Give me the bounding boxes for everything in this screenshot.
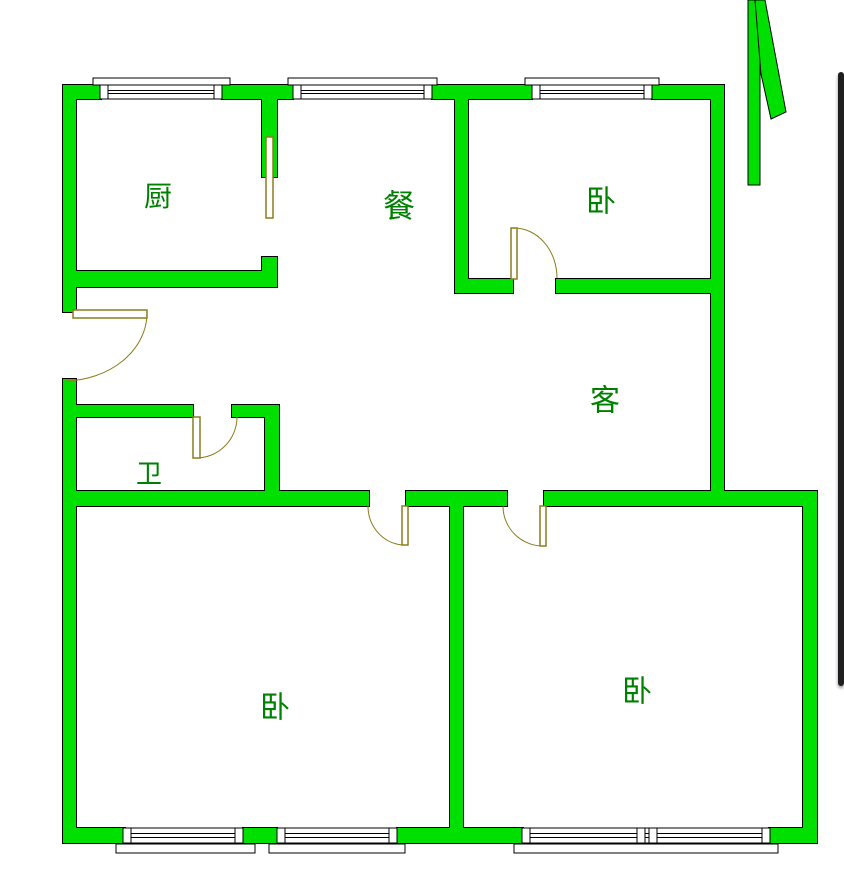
window-post-bedroomN-window-0 xyxy=(532,85,540,99)
window-post-dining-window-1 xyxy=(424,85,432,99)
window-dining-window xyxy=(293,85,432,99)
door-arc-entrance-door xyxy=(66,314,147,381)
window-post-bedroomN-window-1 xyxy=(644,85,652,99)
wall-fill-bottom-2 xyxy=(243,828,277,843)
scrollbar-thumb[interactable] xyxy=(838,72,844,686)
window-post-dining-window-0 xyxy=(293,85,301,99)
window-sill-bedroomSW-window-1 xyxy=(116,844,255,853)
room-label-dining: 餐 xyxy=(383,187,415,225)
room-label-kitchen: 厨 xyxy=(144,180,172,213)
window-sill-bedroomSW-window-2 xyxy=(269,844,405,853)
door-leaf-bedroomN-door xyxy=(511,228,517,279)
wall-fill-bottom-4 xyxy=(769,828,817,843)
window-post-bedroomSE-window-1 xyxy=(637,828,645,843)
window-post-bedroomSW-window-1-0 xyxy=(123,828,131,843)
door-arc-bedroomSW-door xyxy=(368,506,405,545)
window-bedroomSW-window-2 xyxy=(277,828,397,843)
wall-fill-right-lower xyxy=(803,491,817,843)
wall-fill-corridor-3 xyxy=(544,491,817,506)
window-bedroomN-window xyxy=(532,85,652,99)
wall-fill-left-lower xyxy=(63,379,76,843)
floorplan-svg: 厨餐卧客卫卧卧 xyxy=(0,0,844,878)
window-post-bedroomSW-window-2-1 xyxy=(389,828,397,843)
wall-fill-left-upper xyxy=(63,85,76,312)
wall-fill-kitchen-south xyxy=(75,271,277,287)
window-post-bedroomSW-window-2-0 xyxy=(277,828,285,843)
window-post-bedroomSE-window-2 xyxy=(649,828,657,843)
floorplan-canvas: 厨餐卧客卫卧卧 xyxy=(0,0,844,878)
door-arc-bedroomSE-door xyxy=(503,506,543,546)
window-sill-dining-window xyxy=(288,78,437,85)
window-bedroomSE-window xyxy=(522,828,770,843)
window-bedroomSW-window-1 xyxy=(123,828,243,843)
room-label-bathroom: 卫 xyxy=(136,460,162,490)
window-sill-bedroomN-window xyxy=(525,78,659,85)
wall-fill-bottom-3 xyxy=(397,828,523,843)
door-arc-bathroom-door xyxy=(196,417,237,458)
door-leaf-bathroom-door xyxy=(193,417,200,458)
door-leaf-bedroomSW-door xyxy=(402,506,408,545)
window-post-kitchen-window-0 xyxy=(100,85,108,99)
wall-fill-bedrooms-divider xyxy=(450,491,463,842)
wall-fill-top-2 xyxy=(222,85,293,99)
wall-fill-bath-east xyxy=(265,405,279,498)
room-label-bedroom-southeast: 卧 xyxy=(622,675,652,710)
wall-fill-bath-north-1 xyxy=(75,405,193,417)
window-kitchen-window xyxy=(100,85,222,99)
window-sill-bedroomSE-window xyxy=(514,844,778,853)
room-label-bedroom-north: 卧 xyxy=(586,185,616,220)
room-label-bedroom-southwest: 卧 xyxy=(260,691,290,726)
door-leaf-kitchen-sliding-door xyxy=(266,137,273,218)
window-post-bedroomSE-window-3 xyxy=(762,828,770,843)
window-post-bedroomSE-window-0 xyxy=(522,828,530,843)
room-label-living: 客 xyxy=(590,384,620,419)
wall-fill-corridor-1 xyxy=(63,491,369,506)
wall-fill-top-3 xyxy=(432,85,532,99)
wall-fill-bedroomN-west xyxy=(455,99,468,293)
wall-fill-bottom-1 xyxy=(63,828,125,843)
door-leaf-bedroomSE-door xyxy=(540,506,546,546)
window-post-bedroomSW-window-1-1 xyxy=(235,828,243,843)
wall-fill-bedroomN-south-1 xyxy=(455,279,513,293)
door-arc-bedroomN-door xyxy=(514,228,557,278)
wall-fill-bedroomN-south-2 xyxy=(556,279,724,293)
window-sill-kitchen-window xyxy=(93,78,230,85)
wall-fill-right-upper xyxy=(711,85,724,506)
window-post-kitchen-window-1 xyxy=(214,85,222,99)
door-leaf-entrance-door xyxy=(73,310,147,318)
